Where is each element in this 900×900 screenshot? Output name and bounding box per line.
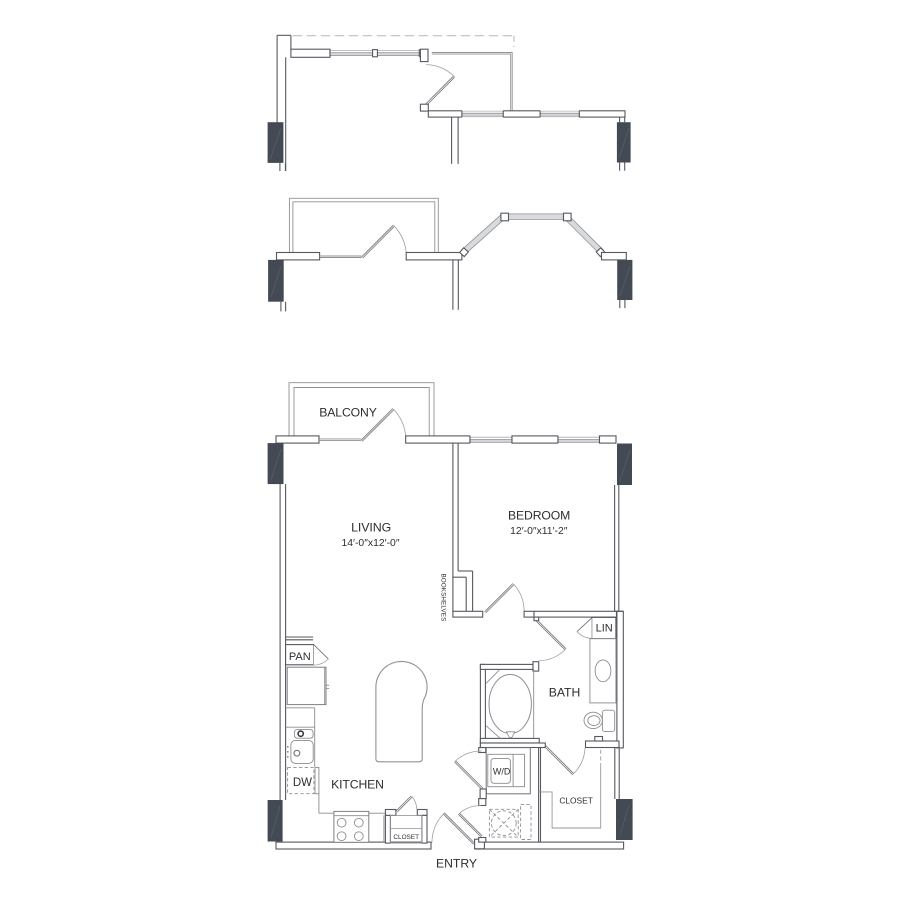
- svg-text:LIN: LIN: [596, 622, 613, 634]
- svg-text:BATH: BATH: [549, 686, 581, 700]
- svg-text:DW: DW: [293, 777, 312, 789]
- svg-text:KITCHEN: KITCHEN: [331, 777, 384, 791]
- svg-text:BALCONY: BALCONY: [319, 405, 377, 419]
- svg-text:W/D: W/D: [493, 766, 511, 776]
- svg-text:ENTRY: ENTRY: [436, 856, 477, 870]
- svg-text:BOOKSHELVES: BOOKSHELVES: [439, 574, 446, 622]
- svg-text:BEDROOM: BEDROOM: [508, 508, 570, 522]
- svg-text:LIVING: LIVING: [351, 520, 391, 534]
- svg-text:PAN: PAN: [289, 651, 311, 663]
- svg-text:12′-0″x11′-2″: 12′-0″x11′-2″: [510, 526, 568, 537]
- svg-text:CLOSET: CLOSET: [559, 796, 593, 806]
- svg-text:CLOSET: CLOSET: [393, 834, 419, 841]
- svg-text:14′-0″x12′-0″: 14′-0″x12′-0″: [341, 538, 399, 549]
